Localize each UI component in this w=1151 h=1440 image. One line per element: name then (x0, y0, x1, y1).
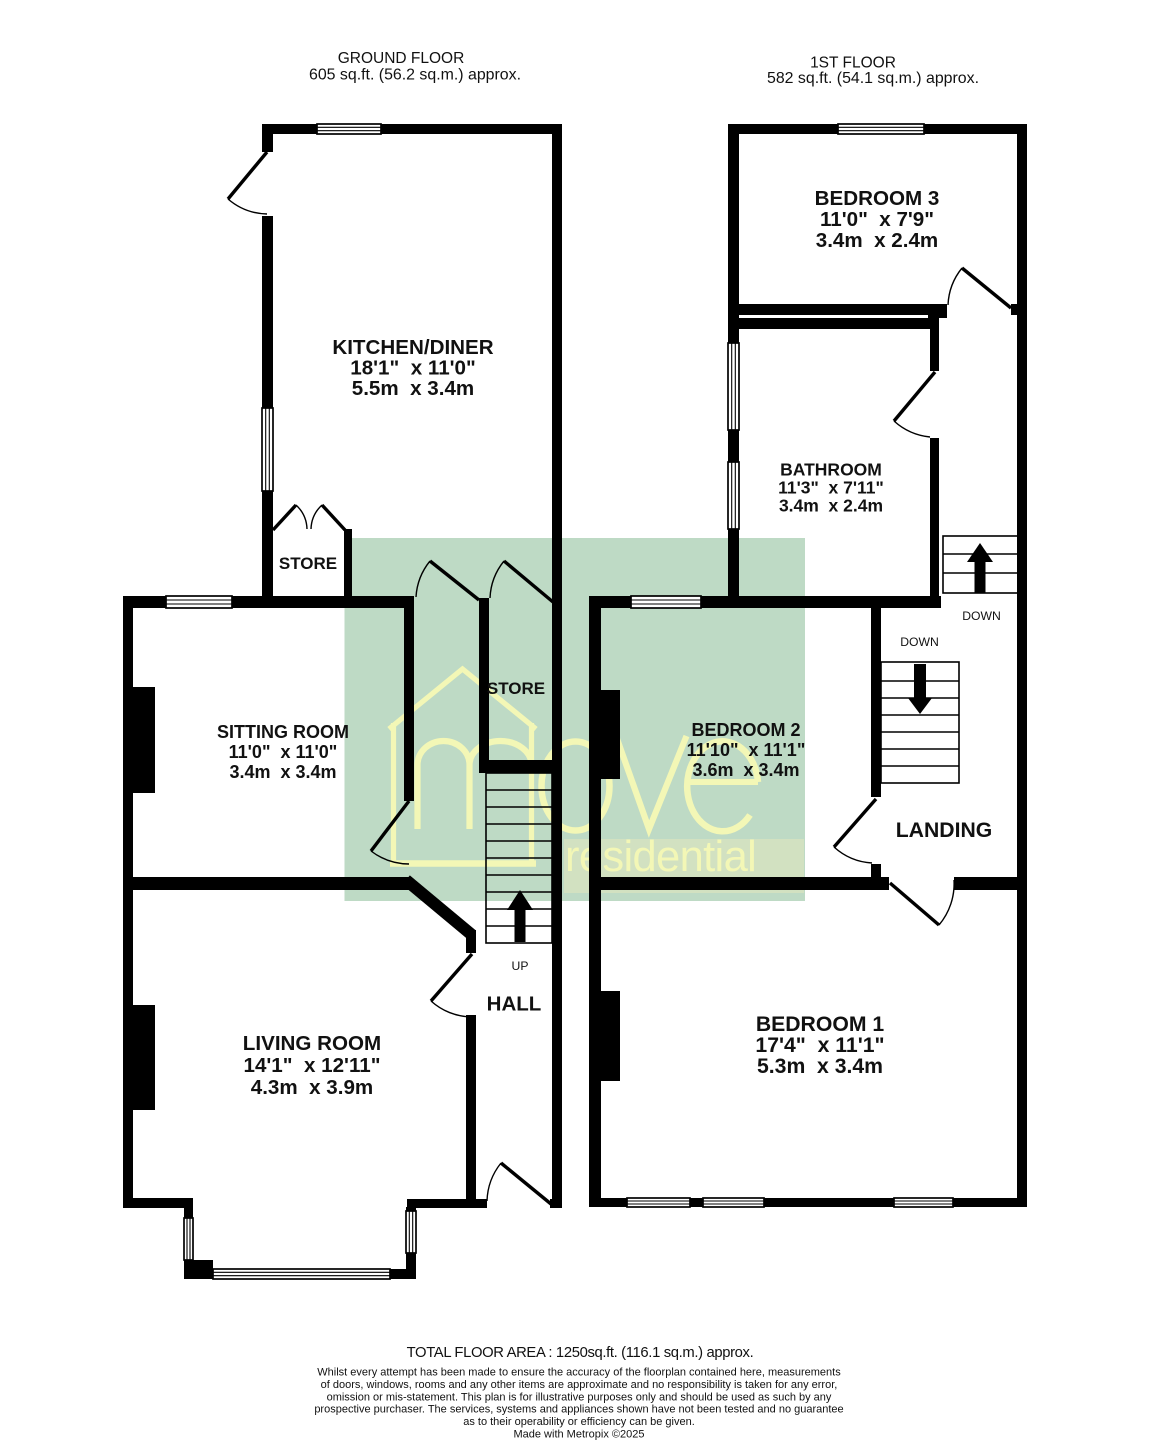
svg-text:BEDROOM 3: BEDROOM 3 (815, 187, 940, 210)
svg-text:TOTAL FLOOR AREA : 1250sq.ft.: TOTAL FLOOR AREA : 1250sq.ft. (116.1 sq.… (407, 1345, 754, 1361)
svg-text:582 sq.ft. (54.1 sq.m.) approx: 582 sq.ft. (54.1 sq.m.) approx. (767, 70, 979, 87)
svg-text:Whilst every attempt has been: Whilst every attempt has been made to en… (317, 1367, 841, 1379)
svg-text:HALL: HALL (487, 993, 542, 1016)
svg-text:of doors, windows, rooms and a: of doors, windows, rooms and any other i… (321, 1379, 838, 1391)
svg-text:3.4m x 3.4m: 3.4m x 3.4m (229, 762, 336, 782)
svg-text:3.6m x 3.4m: 3.6m x 3.4m (692, 760, 799, 780)
svg-text:SITTING ROOM: SITTING ROOM (217, 722, 349, 742)
svg-text:BEDROOM 2: BEDROOM 2 (691, 720, 800, 740)
svg-text:DOWN: DOWN (962, 609, 1001, 623)
svg-text:omission or mis-statement. Thi: omission or mis-statement. This plan is … (327, 1391, 832, 1403)
svg-text:4.3m x 3.9m: 4.3m x 3.9m (251, 1076, 374, 1099)
svg-text:prospective purchaser. The ser: prospective purchaser. The services, sys… (314, 1404, 843, 1416)
svg-text:STORE: STORE (487, 679, 545, 698)
svg-text:BATHROOM: BATHROOM (780, 459, 882, 479)
svg-text:LIVING ROOM: LIVING ROOM (243, 1032, 381, 1055)
svg-text:UP: UP (512, 959, 529, 973)
svg-text:as to their operability or eff: as to their operability or efficiency ca… (463, 1416, 695, 1428)
svg-text:5.3m x 3.4m: 5.3m x 3.4m (757, 1055, 883, 1078)
svg-text:5.5m x 3.4m: 5.5m x 3.4m (352, 377, 475, 400)
svg-text:11'10" x 11'1": 11'10" x 11'1" (687, 740, 806, 760)
svg-text:14'1" x 12'11": 14'1" x 12'11" (244, 1054, 381, 1077)
svg-text:Made with Metropix ©2025: Made with Metropix ©2025 (513, 1429, 644, 1440)
svg-text:LANDING: LANDING (896, 819, 993, 842)
svg-text:DOWN: DOWN (900, 635, 939, 649)
svg-text:17'4" x 11'1": 17'4" x 11'1" (755, 1034, 884, 1057)
svg-text:11'0" x 7'9": 11'0" x 7'9" (820, 208, 934, 231)
svg-text:11'0" x 11'0": 11'0" x 11'0" (229, 742, 338, 762)
svg-text:605 sq.ft. (56.2 sq.m.) approx: 605 sq.ft. (56.2 sq.m.) approx. (309, 67, 521, 84)
svg-text:GROUND FLOOR: GROUND FLOOR (338, 50, 465, 67)
svg-text:STORE: STORE (279, 554, 337, 573)
svg-text:11'3" x 7'11": 11'3" x 7'11" (778, 477, 884, 497)
svg-text:3.4m x 2.4m: 3.4m x 2.4m (816, 229, 939, 252)
svg-text:3.4m x 2.4m: 3.4m x 2.4m (779, 495, 883, 515)
svg-text:1ST FLOOR: 1ST FLOOR (810, 55, 896, 72)
svg-text:BEDROOM 1: BEDROOM 1 (756, 1013, 885, 1036)
